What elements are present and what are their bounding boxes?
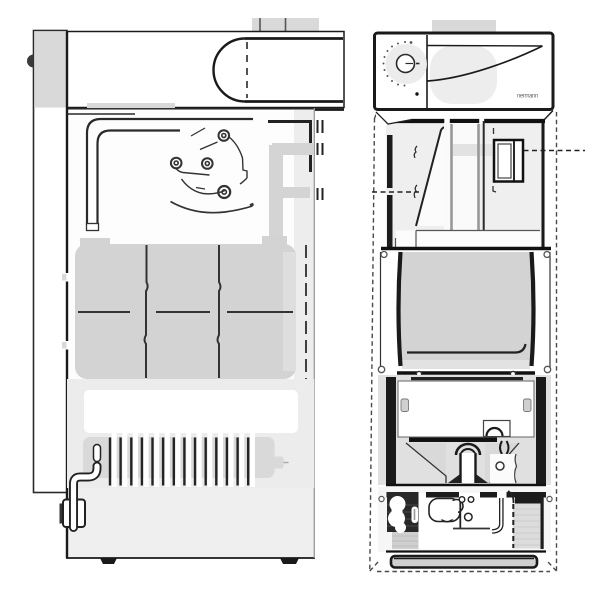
svg-text:nermann: nermann bbox=[517, 94, 538, 100]
